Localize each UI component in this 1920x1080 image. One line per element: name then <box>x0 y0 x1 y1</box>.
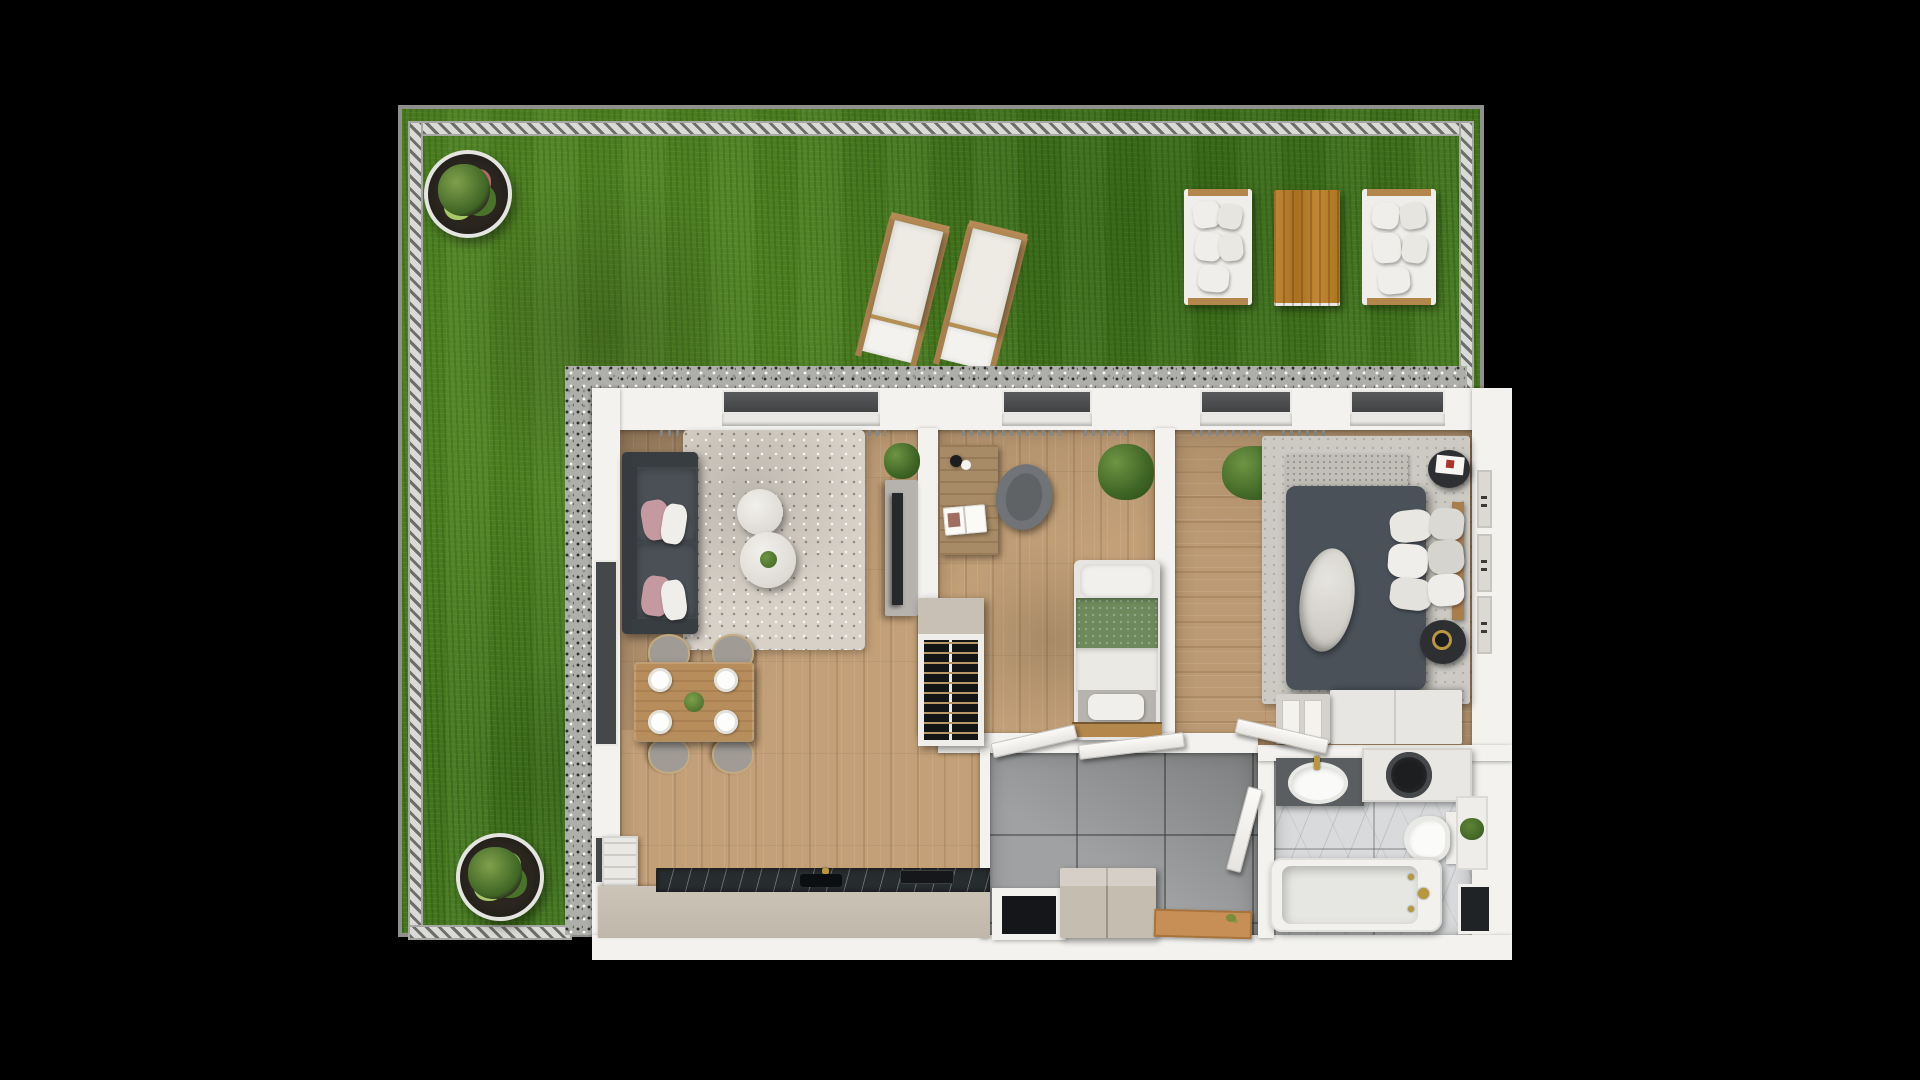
toilet-bowl <box>1404 816 1450 862</box>
desk-lamp <box>950 455 962 467</box>
place-setting <box>648 710 672 734</box>
window-sill <box>1350 414 1445 426</box>
bedroom-dresser <box>1330 690 1462 744</box>
wardrobe-shelves-with-shoes <box>924 640 978 740</box>
wall-radiator-panel <box>1477 534 1492 592</box>
entrance-recess-niche <box>1002 896 1056 934</box>
open-book <box>943 504 987 536</box>
window-bedroom-1 <box>1200 390 1292 414</box>
garden-fence-bottom <box>410 927 570 938</box>
sofa-wood-cap-top <box>1367 189 1431 196</box>
window-sill <box>1200 414 1292 426</box>
sofa-wood-cap-bottom <box>1367 298 1431 305</box>
sofa-backrest <box>622 452 637 634</box>
bed-pillow <box>1429 507 1466 542</box>
left-wall-glazing <box>594 560 618 746</box>
sun-lounger-2 <box>933 220 1029 379</box>
bathroom-storage-niche <box>1458 884 1492 934</box>
sofa-pillow <box>1197 264 1230 294</box>
keys-on-doormat <box>1226 914 1236 922</box>
sofa-pillow <box>1217 233 1244 263</box>
planter-foliage <box>468 847 522 899</box>
drawer-front <box>1304 700 1322 738</box>
garden-fence-left <box>410 123 421 929</box>
kitchen-tall-cabinet <box>602 836 638 890</box>
planter-top-left <box>424 150 512 238</box>
kitchen-hob <box>900 870 954 884</box>
lounger-canvas <box>949 228 1021 335</box>
book-on-bedside-table <box>1435 455 1465 476</box>
curtain <box>1084 430 1128 436</box>
table-grain <box>1274 190 1340 306</box>
book-spine <box>963 506 967 534</box>
child-bed-bench <box>1072 722 1162 737</box>
curtain <box>1192 430 1260 436</box>
living-room-sofa <box>622 452 698 634</box>
child-bed-foot-pillow <box>1088 694 1144 720</box>
bathtub <box>1270 858 1442 932</box>
tv-screen <box>892 493 903 605</box>
sofa-pillow <box>1398 201 1428 231</box>
outdoor-sofa-left <box>1184 189 1252 305</box>
book-red-mark <box>1446 460 1455 469</box>
child-bed-white-duvet <box>1076 648 1158 692</box>
gold-tray-on-bedside-table <box>1432 630 1452 650</box>
window-sill <box>1002 414 1092 426</box>
sofa-pillow <box>1370 200 1400 230</box>
window-bedroom-2 <box>1350 390 1445 414</box>
wooden-doormat <box>1154 909 1253 940</box>
outdoor-sofa-right <box>1362 189 1436 305</box>
bathtub-handle <box>1408 874 1414 880</box>
place-setting <box>648 668 672 692</box>
kitchen-counter <box>598 886 990 938</box>
garden-fence-right <box>1461 123 1472 395</box>
coffee-table-plant <box>760 551 777 568</box>
kitchen-faucet <box>822 868 829 874</box>
bathtub-handle <box>1408 906 1414 912</box>
dining-chair <box>712 738 754 774</box>
child-desk <box>940 445 998 555</box>
sofa-armrest-bottom <box>632 619 698 634</box>
window-sill <box>722 414 880 426</box>
sofa-pillow <box>1216 202 1244 231</box>
sofa-armrest-top <box>632 452 698 467</box>
outdoor-coffee-table <box>1274 190 1340 306</box>
bed-pillow <box>1387 543 1429 580</box>
sofa-pillow <box>1377 265 1412 295</box>
planter-bottom-left <box>456 833 544 921</box>
bed-pillow <box>1388 576 1434 613</box>
child-bed-green-blanket <box>1076 598 1158 650</box>
table-centerpiece-plant <box>684 692 704 712</box>
child-bed-head-pillow <box>1080 564 1154 598</box>
sofa-pillow <box>1400 233 1429 264</box>
dining-chair <box>648 738 690 774</box>
chair-seat <box>1001 470 1046 524</box>
place-setting <box>714 710 738 734</box>
child-bed <box>1074 560 1160 740</box>
coffee-table-small <box>737 489 783 535</box>
wall-radiator-panel <box>1477 470 1492 528</box>
floor-plan-canvas <box>0 0 1920 1080</box>
open-shoe-wardrobe <box>918 598 984 746</box>
planter-foliage <box>438 164 490 216</box>
bathtub-basin <box>1282 866 1418 924</box>
washing-machine-door <box>1386 752 1432 798</box>
bathtub-faucet <box>1418 888 1429 899</box>
plant-beside-tv <box>884 443 920 479</box>
sofa-wood-cap-top <box>1188 189 1248 196</box>
hallway-shoe-cabinet <box>1060 868 1156 938</box>
curtain <box>962 430 1062 436</box>
sofa-pillow <box>1372 232 1403 264</box>
wardrobe-top-beige <box>918 598 984 636</box>
plant-on-shelf <box>1460 818 1484 840</box>
bed-top-throw <box>1286 454 1408 490</box>
lounger-canvas <box>871 220 943 327</box>
window-living-room <box>722 390 880 414</box>
sink-faucet <box>1314 756 1320 770</box>
sofa-wood-cap-bottom <box>1188 298 1248 305</box>
place-setting <box>714 668 738 692</box>
dining-table <box>634 662 754 742</box>
gravel-border-left <box>565 366 592 935</box>
kitchen-sink <box>800 874 842 887</box>
book-illustration <box>947 512 960 527</box>
wall-radiator-panel <box>1477 596 1492 654</box>
bed-pillow <box>1427 538 1466 575</box>
garden-fence-top <box>410 123 1472 134</box>
window-child-room <box>1002 390 1092 414</box>
bed-pillow <box>1427 573 1465 607</box>
child-room-plant <box>1098 444 1154 500</box>
